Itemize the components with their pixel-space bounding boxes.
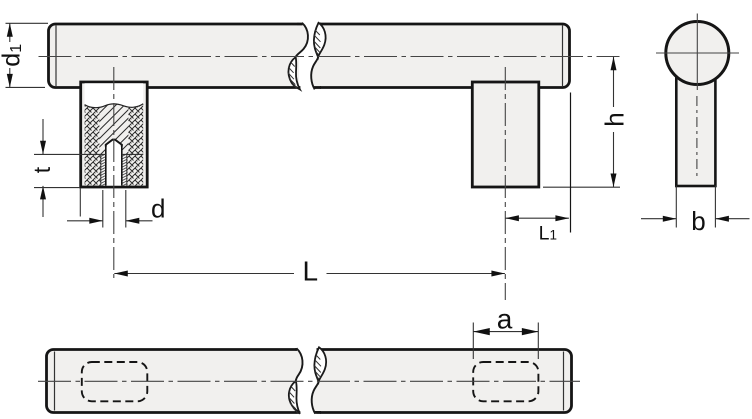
svg-text:L1: L1 [539, 222, 557, 244]
svg-text:a: a [497, 304, 513, 335]
svg-text:L: L [303, 256, 319, 287]
svg-text:h: h [600, 112, 630, 126]
svg-text:d: d [151, 194, 165, 224]
svg-text:t: t [29, 166, 55, 173]
svg-text:b: b [691, 206, 705, 236]
svg-text:d1: d1 [0, 44, 26, 67]
